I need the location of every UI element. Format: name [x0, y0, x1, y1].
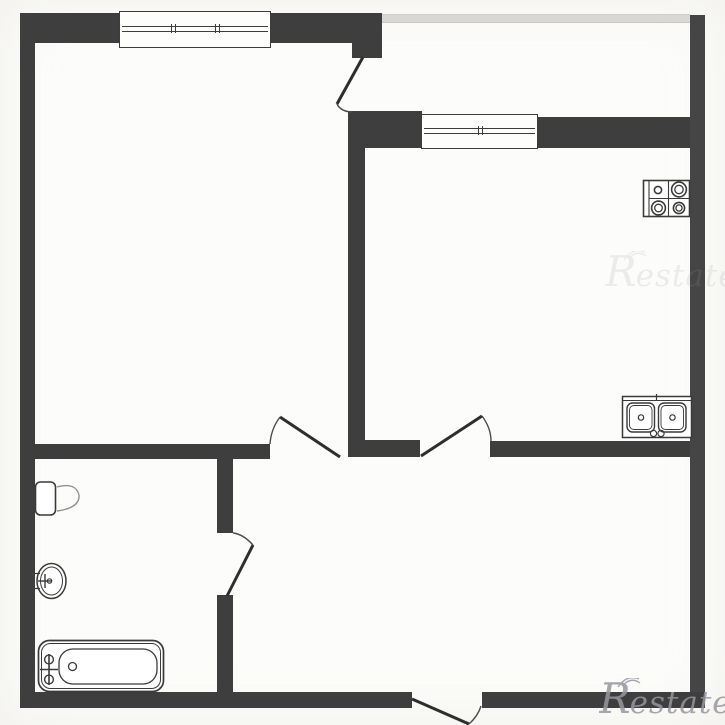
- watermark-restate-bottom: Restate: [599, 678, 725, 725]
- balcony-door-swing-icon: [337, 57, 363, 112]
- bathtub-icon: [39, 641, 164, 692]
- watermark-rest: estate: [636, 258, 725, 294]
- watermark-restate-mid: Restate: [605, 251, 725, 298]
- toilet-icon: [36, 482, 80, 515]
- kitchen-double-sink-icon: [623, 394, 692, 438]
- doors-and-fixtures-layer: [0, 0, 725, 725]
- bathroom-door-swing-icon: [227, 533, 253, 596]
- stove-icon: [644, 181, 690, 217]
- floor-plan: Restate Restate: [0, 0, 725, 725]
- watermark-flourish: [617, 678, 643, 688]
- kitchen-door-swing-icon: [421, 416, 491, 456]
- watermark-rest: estate: [630, 685, 725, 721]
- entrance-door-swing-icon: [412, 699, 481, 724]
- watermark-flourish: [623, 251, 649, 261]
- washbasin-icon: [35, 564, 66, 599]
- livingroom-door-swing-icon: [270, 417, 340, 457]
